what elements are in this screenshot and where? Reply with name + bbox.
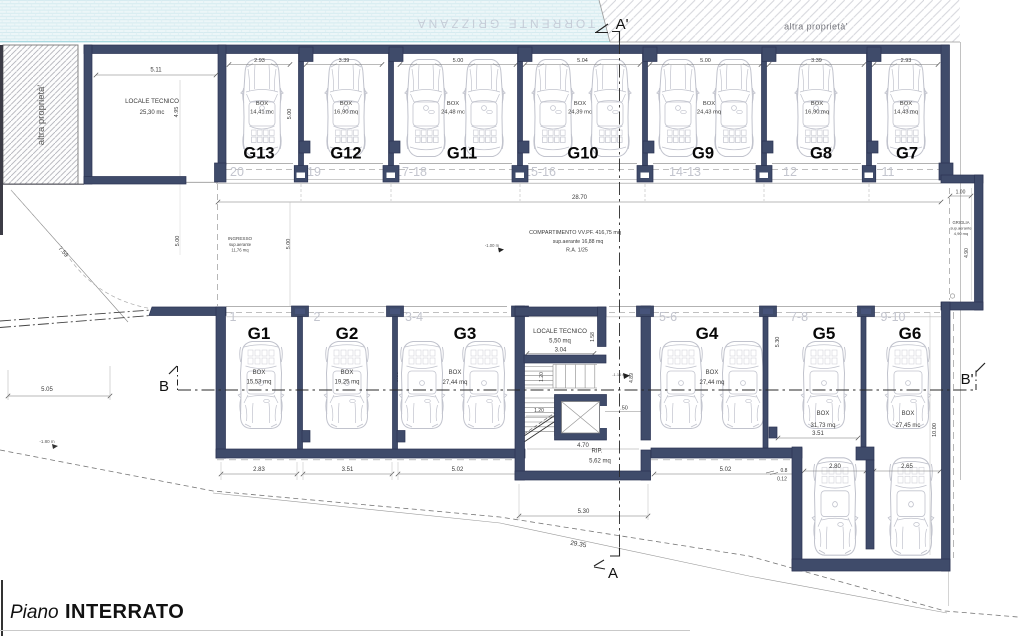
svg-text:BOX: BOX xyxy=(341,370,354,376)
svg-text:17-18: 17-18 xyxy=(395,165,427,179)
svg-text:G3: G3 xyxy=(454,324,477,343)
svg-text:G8: G8 xyxy=(810,145,832,163)
svg-text:G1: G1 xyxy=(248,324,271,343)
svg-text:27,44 mq: 27,44 mq xyxy=(699,380,724,386)
svg-text:G5: G5 xyxy=(813,324,836,343)
svg-text:5.30: 5.30 xyxy=(578,509,590,515)
svg-text:20: 20 xyxy=(230,165,244,179)
svg-text:BOX: BOX xyxy=(703,101,715,107)
svg-text:1.58: 1.58 xyxy=(590,332,596,342)
svg-text:3-4: 3-4 xyxy=(405,310,423,324)
svg-text:24,43 mq: 24,43 mq xyxy=(697,110,721,116)
svg-text:1.00: 1.00 xyxy=(956,190,966,196)
svg-text:BOX: BOX xyxy=(256,101,268,107)
svg-text:5.00: 5.00 xyxy=(287,109,293,120)
svg-text:INTERRATO: INTERRATO xyxy=(65,601,184,623)
svg-text:5.11: 5.11 xyxy=(150,68,162,74)
svg-text:1.20: 1.20 xyxy=(539,372,545,382)
svg-text:1: 1 xyxy=(230,310,237,324)
svg-text:Piano: Piano xyxy=(10,602,59,623)
svg-text:4.89: 4.89 xyxy=(629,373,635,383)
svg-text:INGRESSO: INGRESSO xyxy=(228,236,253,241)
svg-text:3.39: 3.39 xyxy=(339,58,350,64)
svg-text:COMPARTIMENTO VV.PF. 416,75 mq: COMPARTIMENTO VV.PF. 416,75 mq xyxy=(529,230,621,236)
svg-text:G12: G12 xyxy=(330,145,361,163)
svg-text:27,44 mq: 27,44 mq xyxy=(442,380,467,386)
svg-text:5,50 mq: 5,50 mq xyxy=(549,339,571,345)
svg-text:27,45 mc: 27,45 mc xyxy=(896,423,921,429)
svg-text:BOX: BOX xyxy=(811,101,823,107)
svg-text:4.90: 4.90 xyxy=(964,248,970,258)
svg-text:R.A. 1/25: R.A. 1/25 xyxy=(566,248,588,254)
svg-text:5-6: 5-6 xyxy=(659,310,677,324)
svg-text:4,90 mq: 4,90 mq xyxy=(954,231,968,236)
svg-text:sup.aerante 16,88 mq: sup.aerante 16,88 mq xyxy=(553,239,604,245)
svg-text:0.12: 0.12 xyxy=(777,477,787,483)
svg-text:BOX: BOX xyxy=(340,101,352,107)
svg-text:A': A' xyxy=(616,16,629,33)
svg-text:G4: G4 xyxy=(696,324,719,343)
svg-text:3.39: 3.39 xyxy=(811,58,822,64)
svg-text:-1.80 m: -1.80 m xyxy=(39,439,55,444)
svg-text:14,43 mq: 14,43 mq xyxy=(894,110,918,116)
svg-text:.50: .50 xyxy=(620,406,628,412)
svg-text:altra proprietà': altra proprietà' xyxy=(784,22,848,32)
svg-text:24,39 mc: 24,39 mc xyxy=(568,110,592,116)
svg-text:2.83: 2.83 xyxy=(253,467,265,473)
svg-text:12: 12 xyxy=(783,165,797,179)
svg-text:5.00: 5.00 xyxy=(286,239,292,250)
svg-text:sup.aerante: sup.aerante xyxy=(229,242,252,247)
svg-text:19,25 mq: 19,25 mq xyxy=(334,380,359,386)
svg-text:5.02: 5.02 xyxy=(452,467,464,473)
svg-text:BOX: BOX xyxy=(447,101,459,107)
svg-text:2.65: 2.65 xyxy=(901,464,913,470)
svg-text:5.30: 5.30 xyxy=(775,337,781,348)
svg-text:sup.aerante: sup.aerante xyxy=(950,226,972,231)
svg-text:3.51: 3.51 xyxy=(812,431,824,437)
svg-text:LOCALE TECNICO: LOCALE TECNICO xyxy=(533,328,587,335)
svg-text:G11: G11 xyxy=(447,145,477,163)
svg-text:LOCALE TECNICO: LOCALE TECNICO xyxy=(125,98,179,105)
svg-text:BOX: BOX xyxy=(253,370,266,376)
svg-text:A: A xyxy=(608,565,618,582)
svg-text:5,62 mq: 5,62 mq xyxy=(589,459,611,465)
svg-text:15-16: 15-16 xyxy=(524,165,556,179)
svg-text:BOX: BOX xyxy=(902,411,915,417)
svg-text:5.05: 5.05 xyxy=(41,387,53,393)
svg-text:25,30 mc: 25,30 mc xyxy=(140,110,165,116)
svg-text:G10: G10 xyxy=(567,145,598,163)
svg-text:15,53 mq: 15,53 mq xyxy=(246,380,271,386)
svg-text:B: B xyxy=(159,378,169,395)
svg-text:31,73 mq: 31,73 mq xyxy=(810,423,835,429)
svg-text:16,90 mq: 16,90 mq xyxy=(334,110,358,116)
svg-text:11,76 mq: 11,76 mq xyxy=(231,248,249,253)
svg-text:BOX: BOX xyxy=(900,101,912,107)
svg-text:altra proprietà': altra proprietà' xyxy=(36,85,47,146)
svg-text:RIP.: RIP. xyxy=(592,449,603,455)
svg-text:G7: G7 xyxy=(896,145,918,163)
svg-text:2.80: 2.80 xyxy=(829,464,841,470)
svg-text:2: 2 xyxy=(314,310,321,324)
svg-text:16,90 mq: 16,90 mq xyxy=(805,110,829,116)
svg-text:5.02: 5.02 xyxy=(720,467,732,473)
svg-text:5.00: 5.00 xyxy=(453,58,464,64)
svg-text:BOX: BOX xyxy=(706,370,719,376)
svg-text:0.8: 0.8 xyxy=(781,468,788,474)
svg-text:4.95: 4.95 xyxy=(174,107,180,118)
svg-text:10.00: 10.00 xyxy=(932,423,938,437)
svg-text:G2: G2 xyxy=(336,324,359,343)
svg-text:3.51: 3.51 xyxy=(342,467,354,473)
svg-text:2.93: 2.93 xyxy=(254,58,265,64)
svg-text:TORRENTE GRIZZANA: TORRENTE GRIZZANA xyxy=(415,17,596,31)
svg-text:2.93: 2.93 xyxy=(901,58,912,64)
svg-text:1.20: 1.20 xyxy=(534,408,544,414)
svg-text:3.04: 3.04 xyxy=(555,348,567,354)
svg-text:G13: G13 xyxy=(243,145,274,163)
svg-text:19: 19 xyxy=(307,165,321,179)
svg-text:11: 11 xyxy=(882,165,895,179)
svg-text:-1.00 m: -1.00 m xyxy=(485,243,500,248)
svg-text:9-10: 9-10 xyxy=(880,310,905,324)
svg-text:7-8: 7-8 xyxy=(790,310,808,324)
svg-text:BOX: BOX xyxy=(817,411,830,417)
svg-text:14,41 mc: 14,41 mc xyxy=(250,110,274,116)
svg-text:28.70: 28.70 xyxy=(572,195,588,201)
svg-text:BOX: BOX xyxy=(574,101,586,107)
svg-text:BOX: BOX xyxy=(449,370,462,376)
svg-text:B': B' xyxy=(961,371,974,388)
svg-text:5.04: 5.04 xyxy=(577,58,588,64)
svg-text:14-13: 14-13 xyxy=(669,165,701,179)
svg-text:4.70: 4.70 xyxy=(577,443,589,449)
svg-text:G6: G6 xyxy=(899,324,922,343)
svg-text:GRIGLIA: GRIGLIA xyxy=(953,220,970,225)
svg-text:G9: G9 xyxy=(692,145,714,163)
svg-text:5.00: 5.00 xyxy=(700,58,711,64)
svg-text:24,48 mc: 24,48 mc xyxy=(441,110,465,116)
